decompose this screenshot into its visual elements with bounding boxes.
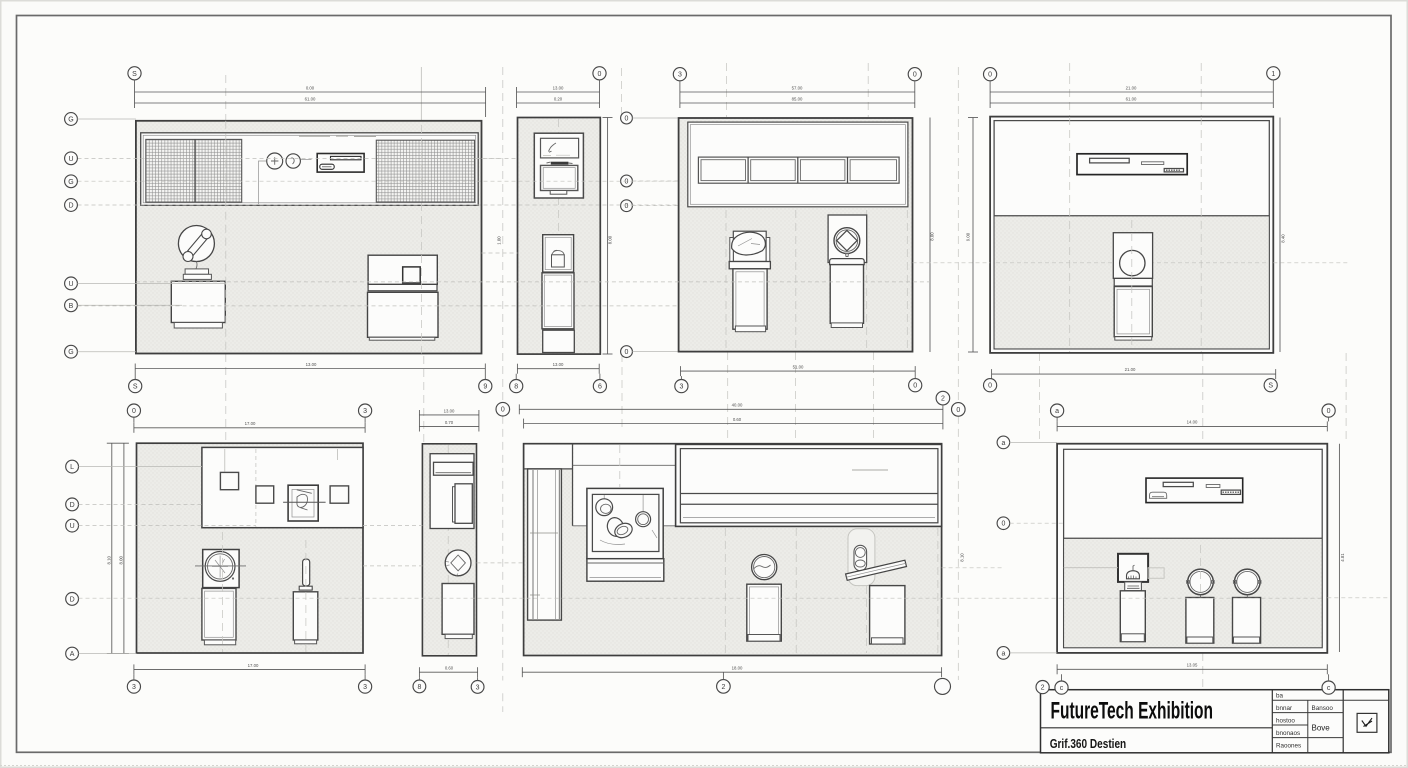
svg-text:8.40: 8.40	[1281, 234, 1286, 243]
svg-text:1: 1	[1271, 71, 1275, 78]
svg-text:0.20: 0.20	[554, 97, 563, 102]
svg-text:D: D	[68, 203, 73, 210]
svg-text:Raoones: Raoones	[1276, 742, 1301, 749]
svg-text:17.00: 17.00	[245, 421, 256, 426]
svg-text:0: 0	[625, 349, 629, 356]
svg-text:0.70: 0.70	[445, 420, 454, 425]
svg-text:0: 0	[988, 72, 992, 79]
svg-text:13.05: 13.05	[1187, 663, 1198, 668]
svg-text:3: 3	[363, 684, 367, 691]
svg-text:21.00: 21.00	[1126, 86, 1137, 91]
svg-text:1.00: 1.00	[496, 236, 501, 245]
svg-text:S: S	[1268, 383, 1273, 390]
svg-text:c: c	[1060, 685, 1064, 692]
svg-text:61.00: 61.00	[305, 97, 316, 102]
svg-text:13.00: 13.00	[553, 86, 564, 91]
svg-text:57.00: 57.00	[792, 86, 803, 91]
svg-text:21.00: 21.00	[1125, 367, 1136, 372]
svg-text:2: 2	[941, 396, 945, 403]
svg-text:3: 3	[476, 684, 480, 691]
svg-text:13.00: 13.00	[444, 408, 455, 413]
svg-text:G: G	[68, 179, 73, 186]
svg-text:2: 2	[1041, 685, 1045, 692]
svg-text:L: L	[70, 464, 74, 471]
svg-text:Bansoo: Bansoo	[1312, 705, 1334, 712]
svg-text:14.00: 14.00	[1187, 420, 1198, 425]
svg-text:G: G	[68, 349, 73, 356]
svg-text:9.00: 9.00	[966, 232, 971, 241]
svg-text:51.00: 51.00	[793, 364, 804, 369]
svg-text:D: D	[70, 596, 75, 603]
svg-text:Bove: Bove	[1312, 724, 1331, 733]
svg-text:8: 8	[417, 684, 421, 691]
svg-text:Grif.360 Destien: Grif.360 Destien	[1050, 737, 1127, 751]
svg-text:a: a	[1001, 440, 1005, 447]
svg-text:0: 0	[625, 203, 629, 210]
svg-text:0: 0	[1327, 408, 1331, 415]
svg-text:61.00: 61.00	[1126, 97, 1137, 102]
svg-text:6: 6	[598, 384, 602, 391]
svg-text:c: c	[1327, 685, 1331, 692]
svg-text:8.10: 8.10	[106, 556, 111, 565]
svg-text:9: 9	[483, 384, 487, 391]
svg-text:0: 0	[625, 115, 629, 122]
svg-text:0.60: 0.60	[445, 666, 454, 671]
svg-text:U: U	[70, 523, 75, 530]
svg-text:13.00: 13.00	[553, 362, 564, 367]
svg-text:8.00: 8.00	[608, 235, 613, 244]
svg-text:40.00: 40.00	[732, 403, 743, 408]
svg-text:0: 0	[501, 407, 505, 414]
svg-text:FutureTech Exhibition: FutureTech Exhibition	[1051, 698, 1214, 725]
svg-text:0: 0	[988, 383, 992, 390]
svg-text:0: 0	[132, 408, 136, 415]
svg-text:8: 8	[514, 384, 518, 391]
svg-text:3: 3	[679, 384, 683, 391]
svg-text:0.60: 0.60	[733, 417, 742, 422]
svg-text:0: 0	[956, 407, 960, 414]
svg-text:a: a	[1055, 408, 1059, 415]
svg-text:8.00: 8.00	[930, 232, 935, 241]
svg-text:2: 2	[721, 684, 725, 691]
svg-text:ba: ba	[1276, 693, 1284, 700]
svg-text:3: 3	[678, 72, 682, 79]
svg-text:U: U	[68, 156, 73, 163]
svg-text:17.00: 17.00	[248, 663, 259, 668]
svg-text:A: A	[70, 651, 75, 658]
svg-text:0: 0	[625, 178, 629, 185]
svg-text:bnnar: bnnar	[1276, 705, 1292, 712]
svg-text:8.00: 8.00	[118, 556, 123, 565]
svg-text:0: 0	[913, 383, 917, 390]
svg-text:0: 0	[913, 72, 917, 79]
svg-text:D: D	[70, 502, 75, 509]
svg-text:bnonaos: bnonaos	[1276, 730, 1300, 737]
svg-text:18.00: 18.00	[732, 665, 743, 670]
svg-text:0.00: 0.00	[306, 86, 315, 91]
svg-text:85.00: 85.00	[792, 97, 803, 102]
svg-text:0: 0	[598, 71, 602, 78]
svg-text:U: U	[68, 281, 73, 288]
svg-text:0: 0	[1001, 521, 1005, 528]
svg-text:S: S	[133, 384, 138, 391]
svg-text:8.10: 8.10	[960, 553, 965, 562]
svg-text:3: 3	[363, 408, 367, 415]
svg-text:a: a	[1001, 650, 1005, 657]
svg-text:4.81: 4.81	[1340, 553, 1345, 562]
svg-text:G: G	[68, 117, 73, 124]
svg-text:S: S	[132, 71, 137, 78]
svg-text:13.00: 13.00	[306, 362, 317, 367]
svg-text:hostoo: hostoo	[1276, 717, 1295, 724]
svg-text:B: B	[69, 303, 74, 310]
svg-text:3: 3	[132, 684, 136, 691]
